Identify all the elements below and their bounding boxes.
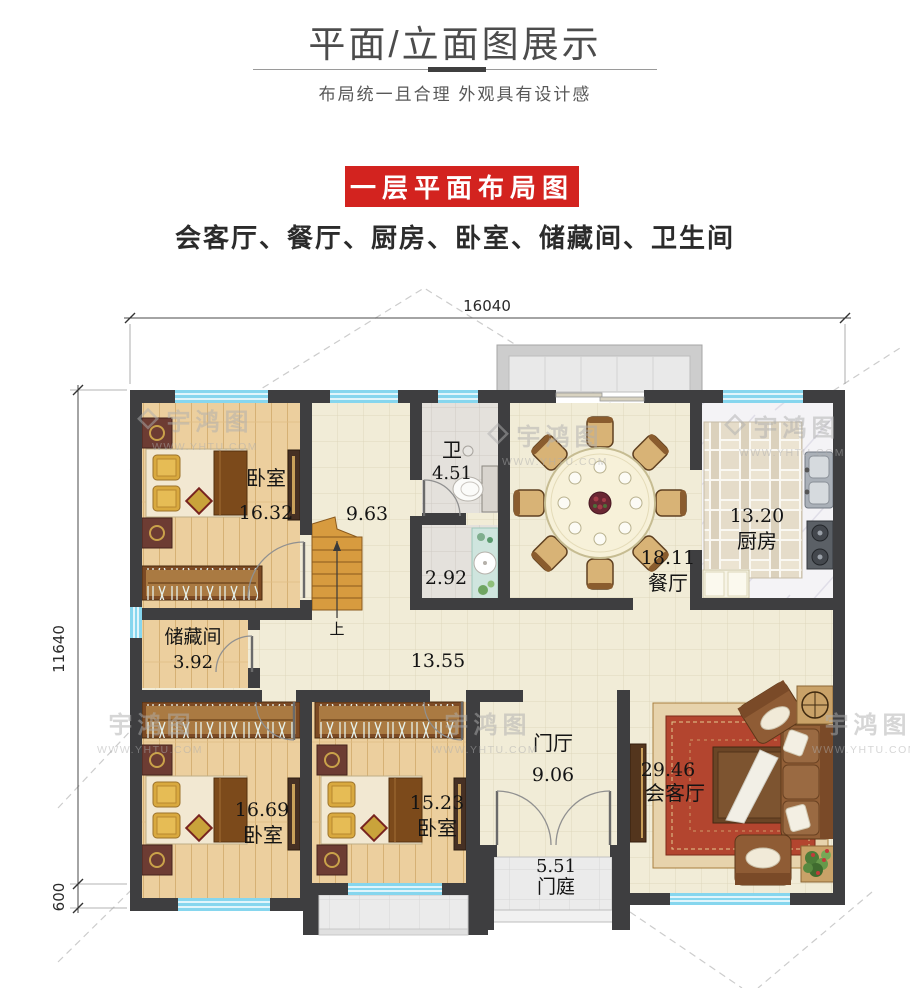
vanity-sink [472, 528, 498, 602]
label-dining-name: 餐厅 [648, 571, 688, 595]
label-storage-area: 3.92 [173, 652, 213, 673]
watermark-brand: 宇鸿图 [445, 710, 532, 739]
watermark-brand: 宇鸿图 [167, 407, 254, 436]
sofa [781, 725, 833, 839]
wardrobe-top-left [142, 566, 262, 600]
watermark-site: WWW.YHTU.COM [152, 441, 258, 453]
label-bedroom-bm-area: 15.23 [410, 792, 464, 814]
kitchen-cabinet [703, 570, 749, 598]
label-kitchen-area: 13.20 [730, 505, 784, 527]
label-living-area: 29.46 [641, 759, 695, 781]
label-porch-area: 5.51 [536, 856, 576, 877]
watermark-brand: 宇鸿图 [825, 710, 910, 739]
floor-drain [463, 446, 473, 456]
dim-width-total: 16040 [463, 297, 511, 315]
rear-terrace [497, 345, 702, 392]
label-washroom-area: 2.92 [425, 567, 467, 589]
sliding-door [556, 393, 644, 401]
coffee-table [713, 747, 788, 823]
watermark-brand: 宇鸿图 [517, 422, 604, 451]
side-terrace [303, 895, 488, 935]
watermark-brand: 宇鸿图 [754, 413, 841, 442]
label-kitchen-name: 厨房 [737, 529, 777, 553]
label-stairs-up: 上 [329, 620, 344, 638]
label-bedroom-tl-area: 16.32 [239, 502, 293, 524]
label-porch-name: 门庭 [537, 876, 575, 898]
label-entry-hall-name: 门厅 [533, 731, 573, 755]
dim-height-step: 600 [50, 883, 68, 912]
label-bedroom-bm-name: 卧室 [417, 816, 457, 840]
label-entry-hall-area: 9.06 [532, 764, 574, 786]
kitchen-counter [704, 422, 802, 578]
watermark-site: WWW.YHTU.COM [97, 744, 203, 756]
kitchen-sink [805, 452, 834, 508]
dim-height-main: 11640 [50, 625, 68, 673]
label-living-name: 会客厅 [645, 781, 705, 805]
kitchen-stove [807, 521, 833, 569]
dimension-top: 16040 [124, 297, 851, 384]
label-bedroom-bl-name: 卧室 [243, 823, 283, 847]
watermark-site: WWW.YHTU.COM [432, 744, 538, 756]
watermark-site: WWW.YHTU.COM [502, 456, 608, 468]
label-bedroom-tl-name: 卧室 [246, 466, 286, 490]
label-storage-name: 储藏间 [164, 626, 221, 648]
label-stair-hall-area: 9.63 [346, 503, 388, 525]
label-bedroom-bl-area: 16.69 [235, 799, 289, 821]
label-dining-area: 18.11 [641, 547, 695, 569]
dimension-left: 11640 600 [50, 385, 127, 913]
label-corridor-area: 13.55 [411, 650, 465, 672]
armchair-bottom [735, 835, 791, 885]
label-bathroom-area: 4.51 [432, 463, 472, 484]
tv-panel-bedroom-bl [288, 778, 300, 850]
watermark-brand: 宇鸿图 [109, 710, 196, 739]
watermark-site: WWW.YHTU.COM [739, 447, 845, 459]
floor-plan: 16040 11640 600 卧室 16.32 9.63 卫 4.51 2.9… [0, 0, 910, 988]
watermark-site: WWW.YHTU.COM [812, 744, 910, 756]
wardrobe-bottom-middle [315, 702, 463, 738]
label-bathroom-name: 卫 [442, 438, 462, 462]
page: 平面/立面图展示 布局统一且合理 外观具有设计感 一层平面布局图 会客厅、餐厅、… [0, 0, 910, 988]
potted-plant [801, 846, 835, 882]
